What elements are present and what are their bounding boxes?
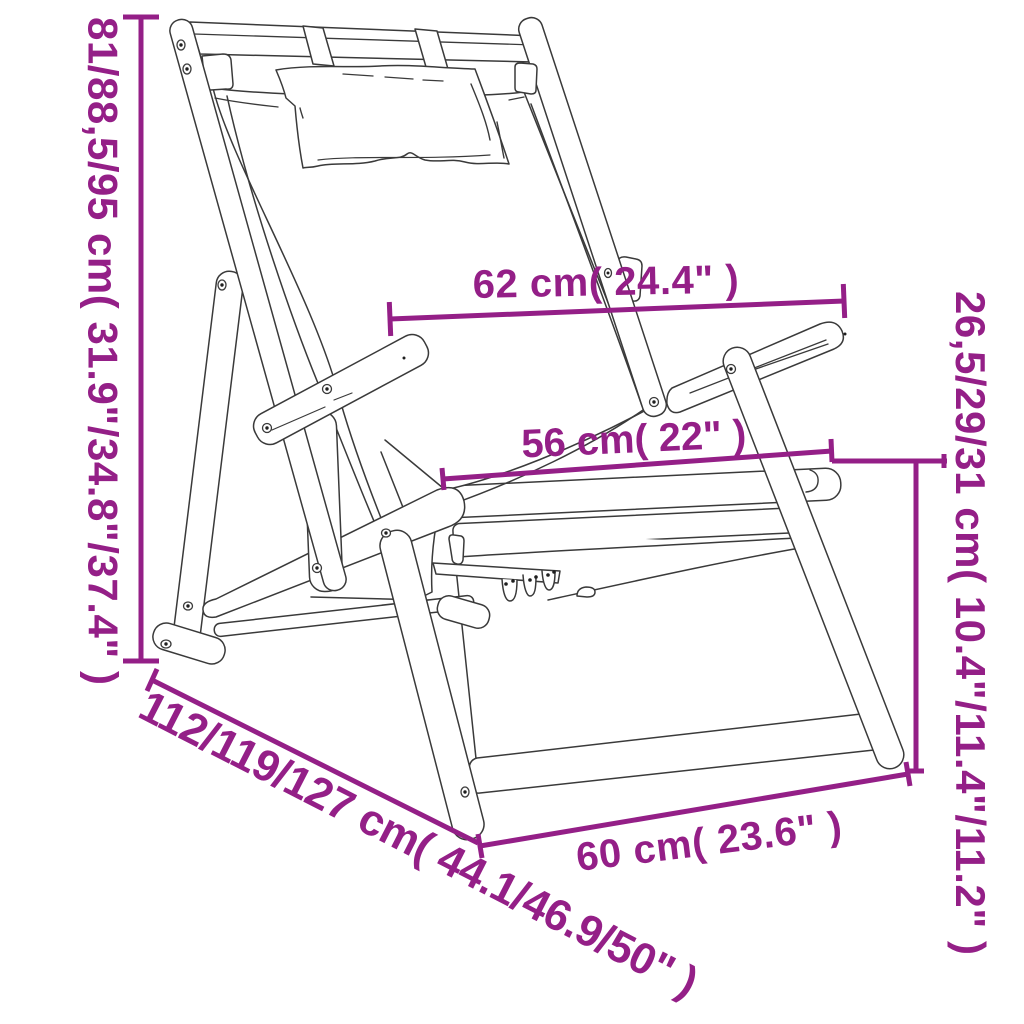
svg-text:62 cm( 24.4" ): 62 cm( 24.4" ) xyxy=(472,257,739,307)
svg-text:26,5/29/31 cm( 10.4"/11.4"/11.: 26,5/29/31 cm( 10.4"/11.4"/11.2" ) xyxy=(947,291,994,955)
svg-text:81/88,5/95 cm( 31.9"/34.8"/37.: 81/88,5/95 cm( 31.9"/34.8"/37.4" ) xyxy=(80,17,127,685)
